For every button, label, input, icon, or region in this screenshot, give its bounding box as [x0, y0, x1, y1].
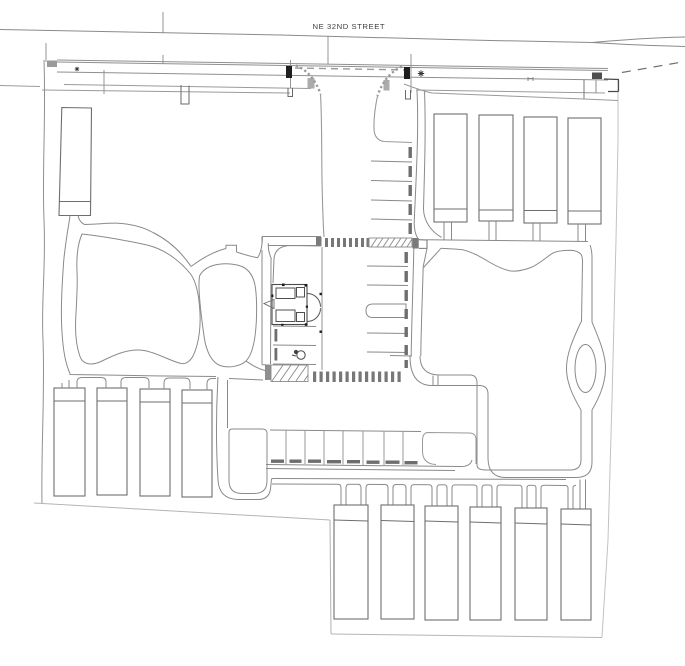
- svg-text:NE 32ND STREET: NE 32ND STREET: [313, 22, 386, 31]
